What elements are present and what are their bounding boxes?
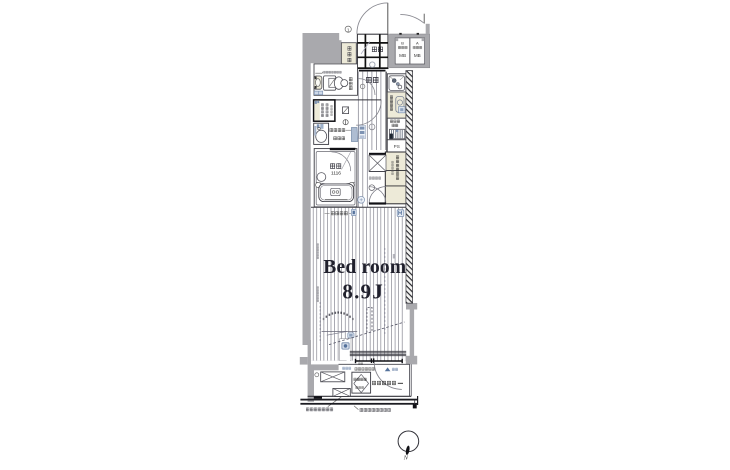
svg-text:1116: 1116 [331,170,341,176]
svg-text:1: 1 [347,27,350,32]
svg-text:PS: PS [394,144,400,149]
svg-text:MB: MB [399,53,406,58]
svg-text:N: N [403,455,409,462]
svg-text:A: A [416,40,419,45]
svg-text:B: B [401,40,404,45]
svg-text:Bed room: Bed room [323,257,406,278]
svg-text:8.9J: 8.9J [342,280,384,304]
svg-text:MB: MB [414,53,421,58]
